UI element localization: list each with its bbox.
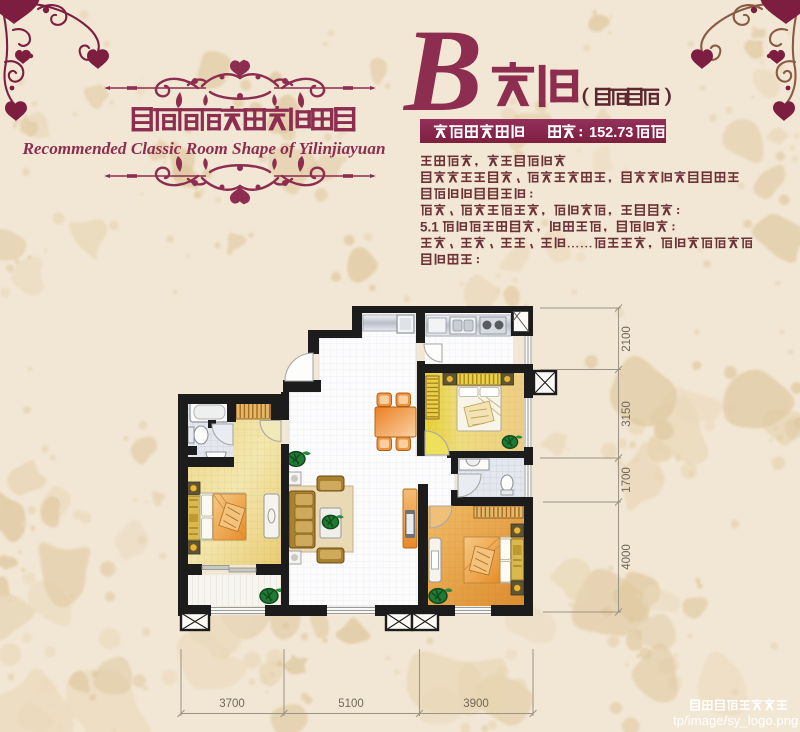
svg-text:2100: 2100 <box>621 326 633 352</box>
svg-text:5100: 5100 <box>338 698 364 710</box>
svg-text:4000: 4000 <box>621 544 633 570</box>
svg-text:tp/image/sy_logo.png: tp/image/sy_logo.png <box>673 713 798 728</box>
svg-text:Recommended Classic Room Shape: Recommended Classic Room Shape of Yilinj… <box>21 139 385 158</box>
svg-text:3150: 3150 <box>621 401 633 427</box>
svg-text:3900: 3900 <box>463 698 489 710</box>
svg-text:1700: 1700 <box>621 467 633 493</box>
svg-text:B: B <box>402 5 483 136</box>
svg-text:3700: 3700 <box>219 698 245 710</box>
svg-text:5.1: 5.1 <box>420 220 439 235</box>
svg-text:152.73: 152.73 <box>589 125 633 141</box>
